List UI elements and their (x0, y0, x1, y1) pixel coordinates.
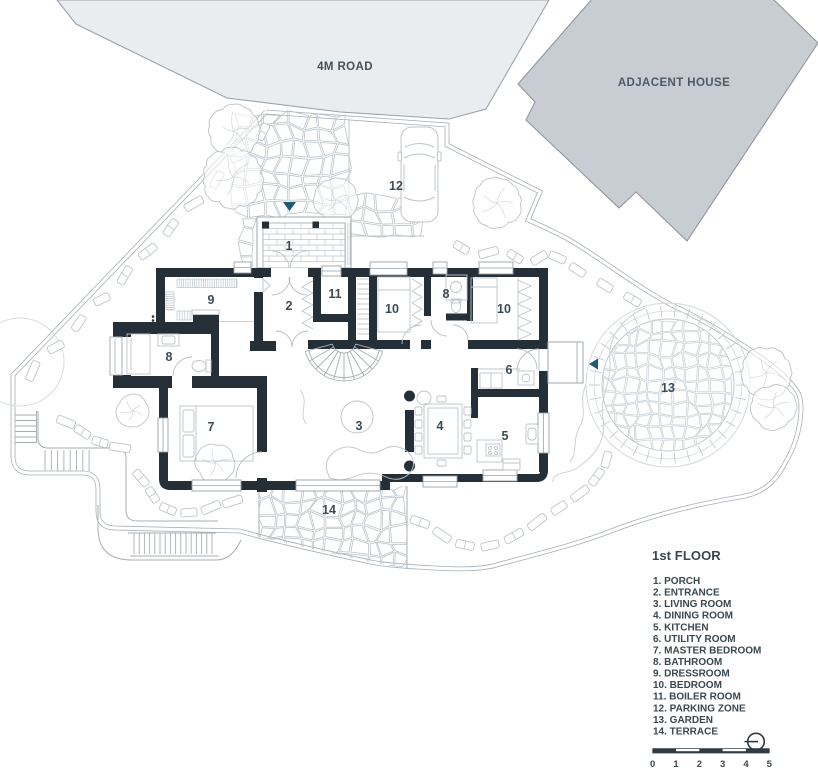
svg-text:4: 4 (743, 759, 749, 770)
svg-text:14: 14 (322, 503, 336, 517)
svg-text:11: 11 (328, 287, 341, 301)
svg-text:4: 4 (437, 419, 444, 433)
svg-text:4M ROAD: 4M ROAD (317, 61, 373, 73)
svg-text:13. GARDEN: 13. GARDEN (653, 715, 713, 726)
svg-text:9: 9 (208, 293, 215, 307)
svg-text:1. PORCH: 1. PORCH (653, 576, 700, 587)
svg-text:2. ENTRANCE: 2. ENTRANCE (653, 588, 720, 599)
svg-text:3: 3 (720, 759, 725, 770)
svg-text:9. DRESSROOM: 9. DRESSROOM (653, 669, 730, 680)
svg-text:1: 1 (286, 239, 293, 253)
svg-text:10. BEDROOM: 10. BEDROOM (653, 680, 722, 691)
svg-text:1: 1 (673, 759, 679, 770)
svg-text:7: 7 (208, 420, 215, 434)
svg-text:2: 2 (697, 759, 702, 770)
svg-text:5: 5 (502, 429, 509, 443)
svg-text:3: 3 (356, 419, 363, 433)
svg-text:10: 10 (497, 302, 511, 316)
svg-text:5: 5 (767, 759, 773, 770)
svg-text:12. PARKING ZONE: 12. PARKING ZONE (653, 703, 746, 714)
svg-text:14. TERRACE: 14. TERRACE (653, 726, 718, 737)
svg-text:11. BOILER ROOM: 11. BOILER ROOM (653, 692, 741, 703)
svg-text:6: 6 (506, 363, 513, 377)
svg-text:ADJACENT HOUSE: ADJACENT HOUSE (618, 77, 730, 89)
svg-text:10: 10 (385, 302, 399, 316)
svg-text:4. DINING ROOM: 4. DINING ROOM (653, 611, 733, 622)
svg-text:3. LIVING ROOM: 3. LIVING ROOM (653, 599, 731, 610)
svg-text:0: 0 (650, 759, 655, 770)
svg-text:7. MASTER BEDROOM: 7. MASTER BEDROOM (653, 645, 761, 656)
svg-text:1st FLOOR: 1st FLOOR (652, 548, 721, 563)
svg-text:8. BATHROOM: 8. BATHROOM (653, 657, 722, 668)
svg-text:2: 2 (286, 299, 293, 313)
svg-text:12: 12 (389, 179, 403, 193)
svg-text:6. UTILITY ROOM: 6. UTILITY ROOM (653, 634, 736, 645)
svg-text:13: 13 (661, 381, 675, 395)
svg-text:8: 8 (166, 350, 173, 364)
svg-text:8: 8 (443, 287, 450, 301)
svg-text:5. KITCHEN: 5. KITCHEN (653, 622, 709, 633)
